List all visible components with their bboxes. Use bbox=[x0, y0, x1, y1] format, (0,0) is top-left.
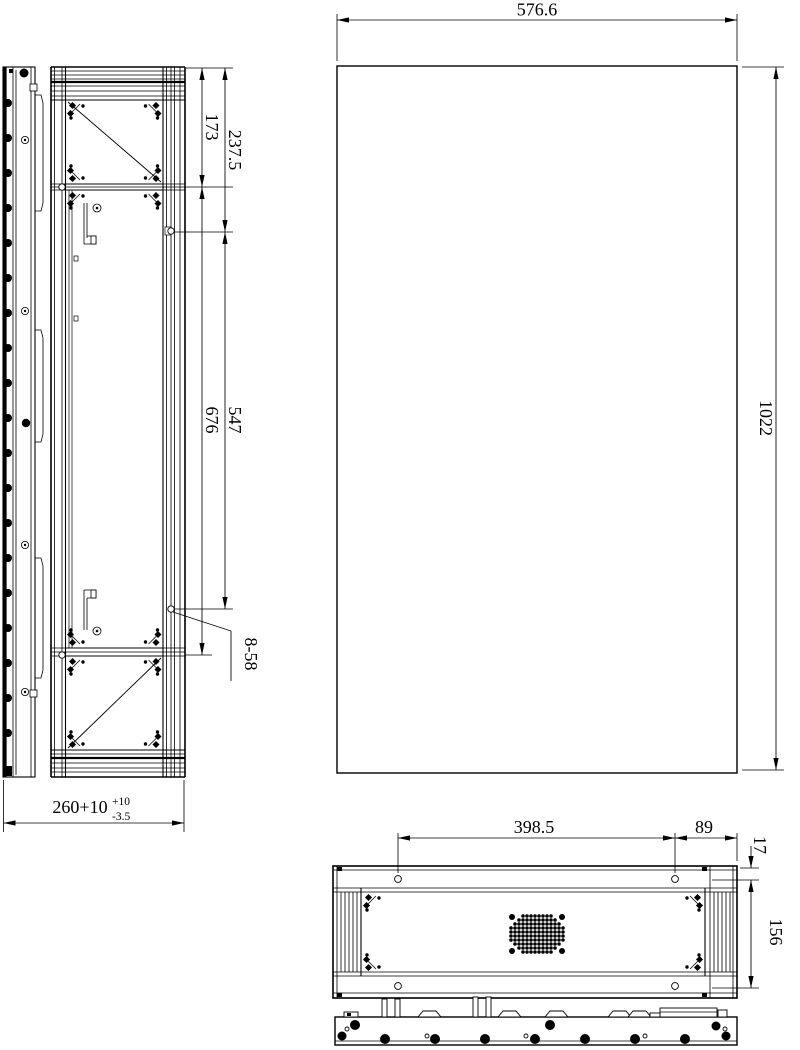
screw-dot bbox=[517, 946, 521, 950]
screw-dot bbox=[4, 414, 12, 422]
screw-dot bbox=[509, 926, 513, 930]
screw-dot bbox=[4, 379, 12, 387]
screw-dot bbox=[4, 554, 12, 562]
screw-dot bbox=[541, 930, 545, 934]
screw-dot bbox=[4, 694, 12, 702]
screw-dot bbox=[541, 934, 545, 938]
screw-dot bbox=[529, 922, 533, 926]
dim-depth-tol-minus: -3.5 bbox=[112, 811, 130, 823]
screw-dot bbox=[529, 950, 533, 954]
screw-dot bbox=[521, 918, 525, 922]
screw-dot bbox=[533, 914, 537, 918]
screw-dot bbox=[557, 930, 561, 934]
screw-dot bbox=[541, 914, 545, 918]
screw-dot bbox=[4, 309, 12, 317]
screw-dot bbox=[545, 938, 549, 942]
screw-dot bbox=[537, 950, 541, 954]
screw-dot bbox=[517, 918, 521, 922]
screw-dot bbox=[4, 134, 12, 142]
screw-dot bbox=[553, 922, 557, 926]
screw-dot bbox=[545, 942, 549, 946]
dim-side-span-b: 547 bbox=[225, 407, 245, 434]
screw-dot bbox=[529, 914, 533, 918]
screw-dot bbox=[525, 926, 529, 930]
dim-front-height: 1022 bbox=[756, 400, 776, 436]
screw-dot bbox=[525, 938, 529, 942]
screw-dot bbox=[529, 926, 533, 930]
screw-dot bbox=[549, 942, 553, 946]
screw-dot bbox=[553, 934, 557, 938]
screw-dot bbox=[509, 934, 513, 938]
dim-side-span-a: 676 bbox=[202, 407, 222, 434]
screw-dot bbox=[4, 169, 12, 177]
screw-dot bbox=[529, 938, 533, 942]
rear-top-view bbox=[333, 866, 737, 998]
screw-dot bbox=[541, 938, 545, 942]
screw-dot bbox=[4, 449, 12, 457]
screw-dot bbox=[4, 484, 12, 492]
screw-dot bbox=[549, 950, 553, 954]
screw-dot bbox=[541, 926, 545, 930]
screw-dot bbox=[533, 934, 537, 938]
screw-dot bbox=[549, 938, 553, 942]
dim-side-offset-a: 173 bbox=[202, 114, 222, 141]
hanger-hook-top bbox=[84, 203, 101, 244]
screw-dot bbox=[545, 934, 549, 938]
screw-dot bbox=[517, 922, 521, 926]
dim-front-width: 576.6 bbox=[517, 0, 558, 20]
screw-dot bbox=[513, 938, 517, 942]
screw-dot bbox=[529, 942, 533, 946]
screw-dot bbox=[545, 914, 549, 918]
fan-grille bbox=[509, 914, 565, 954]
screw-dot bbox=[561, 938, 565, 942]
screw-dot bbox=[525, 922, 529, 926]
screw-dot bbox=[513, 922, 517, 926]
screw-dot bbox=[553, 930, 557, 934]
screw-dot bbox=[561, 930, 565, 934]
screw-dot bbox=[557, 942, 561, 946]
screw-dot bbox=[533, 950, 537, 954]
dim-rear-row-span: 156 bbox=[766, 919, 786, 946]
screw-dot bbox=[553, 918, 557, 922]
screw-dot bbox=[549, 930, 553, 934]
screw-dot bbox=[541, 922, 545, 926]
screw-dot bbox=[525, 934, 529, 938]
screw-dot bbox=[4, 624, 12, 632]
screw-dot bbox=[537, 946, 541, 950]
screw-dot bbox=[521, 926, 525, 930]
screw-dot bbox=[525, 914, 529, 918]
dim-hole-callout: 8-58 bbox=[241, 638, 261, 671]
frame-side-view bbox=[51, 67, 185, 777]
screw-dot bbox=[537, 934, 541, 938]
screw-dot bbox=[537, 922, 541, 926]
screw-dot bbox=[509, 938, 513, 942]
screw-dot bbox=[513, 930, 517, 934]
dim-depth: 260+10 bbox=[52, 797, 107, 817]
dimension-annotations: 576.6 1022 173 237.5 676 547 8-58 260+10… bbox=[4, 0, 787, 988]
dim-rear-hole-offset: 17 bbox=[750, 836, 770, 854]
screw-dot bbox=[533, 922, 537, 926]
screw-dot bbox=[513, 942, 517, 946]
screw-dot bbox=[4, 239, 12, 247]
screw-dot bbox=[4, 204, 12, 212]
screw-dot bbox=[529, 918, 533, 922]
screw-dot bbox=[557, 922, 561, 926]
screw-dot bbox=[521, 950, 525, 954]
screw-dot bbox=[545, 926, 549, 930]
strip-screw-dots bbox=[338, 1020, 731, 1044]
screw-dot bbox=[533, 938, 537, 942]
screw-dot bbox=[4, 344, 12, 352]
screw-dot bbox=[513, 934, 517, 938]
screw-dot bbox=[537, 930, 541, 934]
technical-drawing: 576.6 1022 173 237.5 676 547 8-58 260+10… bbox=[0, 0, 800, 1050]
screw-dot bbox=[525, 950, 529, 954]
screw-dot bbox=[517, 938, 521, 942]
screw-dot bbox=[545, 918, 549, 922]
screw-dot bbox=[557, 926, 561, 930]
screw-dot bbox=[561, 934, 565, 938]
side-profile-view bbox=[3, 67, 43, 777]
screw-dot bbox=[545, 930, 549, 934]
screw-dot bbox=[529, 946, 533, 950]
front-view bbox=[337, 66, 737, 773]
screw-dot bbox=[4, 659, 12, 667]
screw-dot bbox=[557, 934, 561, 938]
screw-dot bbox=[545, 946, 549, 950]
screw-dot bbox=[521, 946, 525, 950]
screw-dot bbox=[545, 950, 549, 954]
screw-dot bbox=[549, 934, 553, 938]
dim-depth-tol-plus: +10 bbox=[112, 796, 130, 808]
screw-dot bbox=[545, 922, 549, 926]
screw-dot bbox=[541, 918, 545, 922]
screw-dot bbox=[549, 946, 553, 950]
screw-dot bbox=[517, 934, 521, 938]
screw-dot bbox=[525, 918, 529, 922]
hanger-hook-bottom bbox=[84, 590, 101, 635]
screw-dot bbox=[553, 942, 557, 946]
screw-dot bbox=[537, 914, 541, 918]
screw-dot bbox=[521, 914, 525, 918]
screw-dot bbox=[549, 918, 553, 922]
screw-dot bbox=[525, 930, 529, 934]
screw-dot bbox=[553, 946, 557, 950]
screw-dot bbox=[525, 946, 529, 950]
screw-dot bbox=[4, 99, 12, 107]
drawing-sheet: { "dimensions": { "front_width": "576.6"… bbox=[0, 0, 800, 1050]
screw-dot bbox=[541, 946, 545, 950]
screw-dot bbox=[537, 918, 541, 922]
screw-dot bbox=[553, 926, 557, 930]
screw-dot bbox=[561, 926, 565, 930]
bottom-profile-view bbox=[335, 997, 737, 1045]
dim-rear-hole-edge: 89 bbox=[695, 817, 713, 837]
screw-dot bbox=[533, 942, 537, 946]
screw-dot bbox=[537, 926, 541, 930]
screw-dot bbox=[4, 729, 12, 737]
screw-dot bbox=[4, 274, 12, 282]
screw-dot bbox=[4, 589, 12, 597]
screw-dot bbox=[529, 934, 533, 938]
screw-dot bbox=[521, 934, 525, 938]
screw-dot bbox=[553, 938, 557, 942]
screw-dot bbox=[509, 930, 513, 934]
screw-dot bbox=[521, 922, 525, 926]
screw-dot bbox=[537, 942, 541, 946]
screw-dot bbox=[533, 946, 537, 950]
screw-dot bbox=[549, 914, 553, 918]
screw-dot bbox=[533, 926, 537, 930]
screw-dot bbox=[529, 930, 533, 934]
dim-side-offset-b: 237.5 bbox=[225, 130, 245, 171]
screw-dot bbox=[541, 950, 545, 954]
screw-dot bbox=[541, 942, 545, 946]
screw-dot bbox=[557, 938, 561, 942]
screw-dot bbox=[4, 519, 12, 527]
dim-rear-hole-span: 398.5 bbox=[514, 817, 555, 837]
screw-dot bbox=[537, 938, 541, 942]
screw-dot bbox=[517, 930, 521, 934]
screw-dot bbox=[521, 942, 525, 946]
screw-dot bbox=[517, 942, 521, 946]
screw-dot bbox=[521, 938, 525, 942]
screw-dot bbox=[521, 930, 525, 934]
screw-dot bbox=[549, 926, 553, 930]
screw-dot bbox=[533, 930, 537, 934]
screw-dot bbox=[549, 922, 553, 926]
screw-dot bbox=[525, 942, 529, 946]
screw-dot bbox=[533, 918, 537, 922]
screw-dot bbox=[517, 926, 521, 930]
screw-dot bbox=[513, 926, 517, 930]
